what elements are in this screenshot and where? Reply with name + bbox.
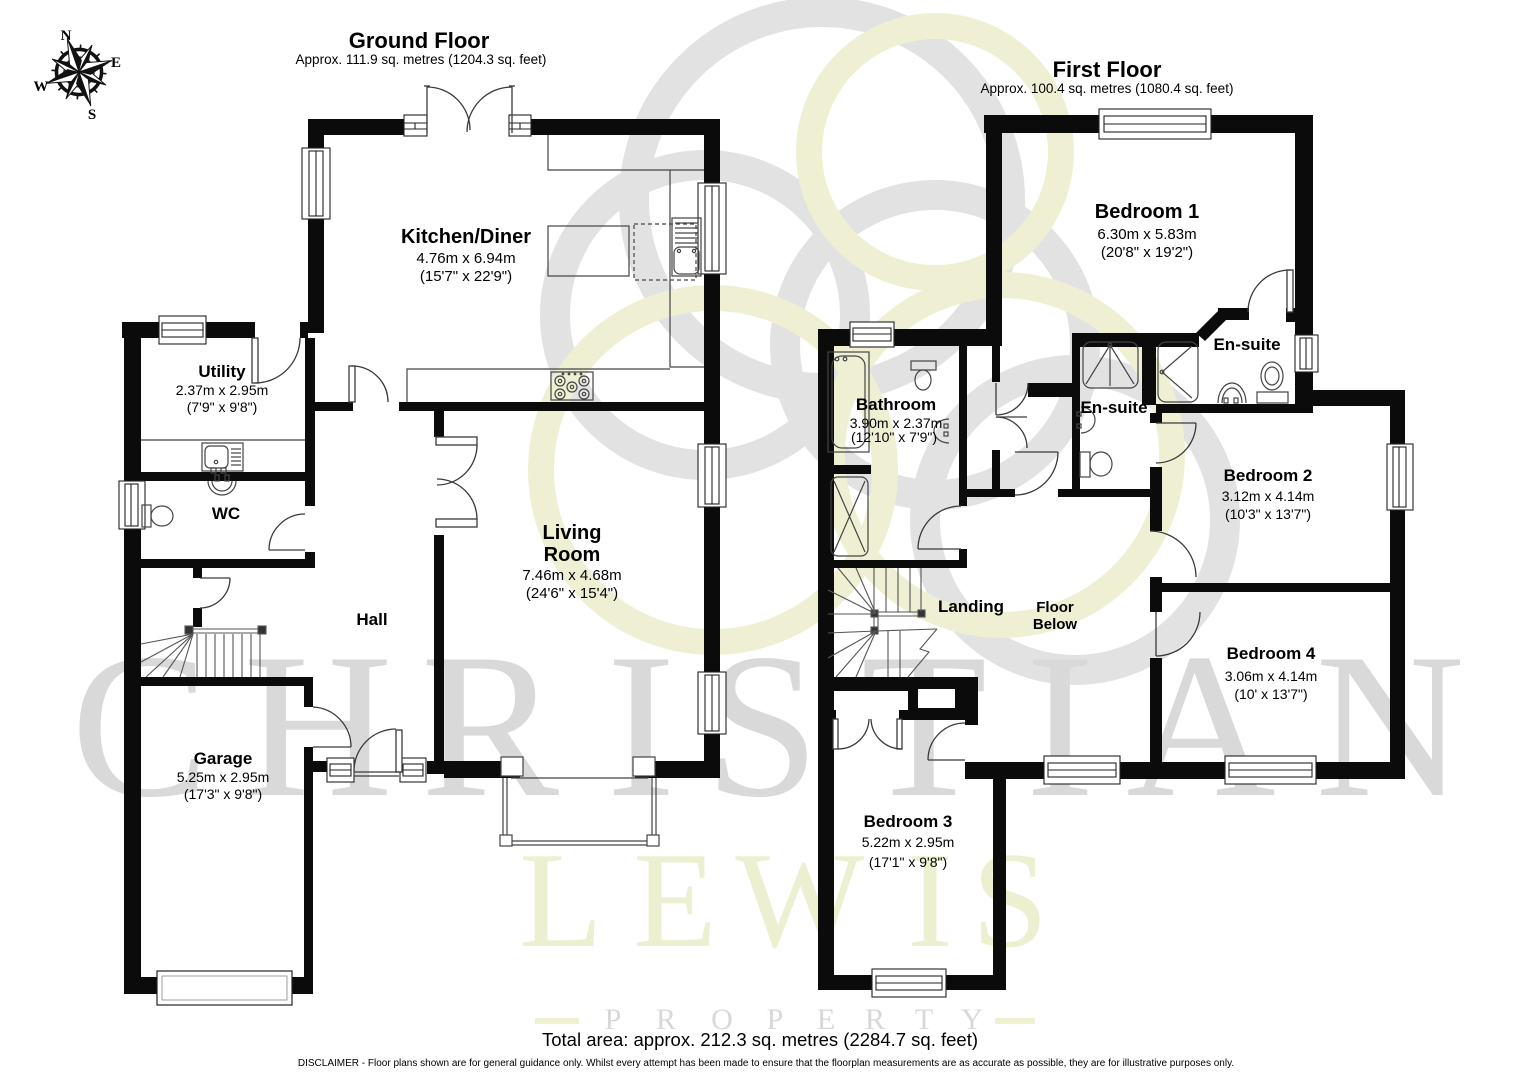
svg-text:En-suite: En-suite: [1213, 335, 1280, 354]
svg-text:Landing: Landing: [938, 597, 1004, 616]
svg-text:(24'6" x 15'4"): (24'6" x 15'4"): [526, 585, 618, 602]
svg-text:Ground Floor: Ground Floor: [349, 28, 490, 53]
svg-text:7.46m x 4.68m: 7.46m x 4.68m: [522, 567, 621, 584]
svg-text:Total area: approx. 212.3 sq.: Total area: approx. 212.3 sq. metres (22…: [542, 1029, 978, 1050]
svg-text:(7'9" x 9'8"): (7'9" x 9'8"): [187, 399, 258, 415]
svg-text:H: H: [243, 611, 393, 840]
svg-text:Bedroom 3: Bedroom 3: [864, 812, 953, 831]
svg-text:5.22m x 2.95m: 5.22m x 2.95m: [862, 834, 955, 850]
svg-text:(10' x 13'7"): (10' x 13'7"): [1234, 686, 1307, 702]
svg-text:(17'1" x 9'8"): (17'1" x 9'8"): [869, 854, 947, 870]
svg-text:(10'3" x 13'7"): (10'3" x 13'7"): [1225, 506, 1311, 522]
svg-text:First Floor: First Floor: [1053, 57, 1162, 82]
svg-text:Hall: Hall: [356, 610, 387, 629]
svg-text:5.25m x 2.95m: 5.25m x 2.95m: [177, 769, 270, 785]
svg-text:Living: Living: [543, 522, 602, 544]
svg-text:(12'10" x 7'9"): (12'10" x 7'9"): [851, 429, 937, 445]
svg-text:3.12m x 4.14m: 3.12m x 4.14m: [1222, 488, 1315, 504]
svg-text:Floor: Floor: [1036, 599, 1074, 616]
svg-text:Garage: Garage: [194, 749, 253, 768]
svg-text:S: S: [88, 107, 96, 123]
svg-text:DISCLAIMER - Floor plans show: DISCLAIMER - Floor plans shown are for g…: [298, 1058, 1234, 1069]
svg-text:Approx. 111.9 sq. metres (1204: Approx. 111.9 sq. metres (1204.3 sq. fee…: [296, 52, 547, 67]
svg-text:Bedroom 2: Bedroom 2: [1224, 466, 1313, 485]
svg-text:4.76m x 6.94m: 4.76m x 6.94m: [416, 250, 515, 267]
svg-text:Bedroom 4: Bedroom 4: [1227, 644, 1316, 663]
svg-text:E: E: [111, 55, 121, 71]
svg-text:Room: Room: [544, 544, 601, 566]
svg-text:Below: Below: [1033, 616, 1078, 633]
svg-text:WC: WC: [212, 504, 240, 523]
svg-text:(17'3" x 9'8"): (17'3" x 9'8"): [184, 786, 262, 802]
svg-text:Utility: Utility: [198, 362, 246, 381]
svg-text:S: S: [972, 824, 1048, 976]
svg-text:N: N: [61, 28, 72, 44]
svg-text:Bedroom 1: Bedroom 1: [1095, 201, 1199, 223]
svg-text:6.30m x 5.83m: 6.30m x 5.83m: [1097, 226, 1196, 243]
svg-text:T: T: [861, 611, 987, 840]
svg-text:Kitchen/Diner: Kitchen/Diner: [401, 226, 531, 248]
svg-text:W: W: [34, 79, 49, 95]
svg-text:(15'7" x 22'9"): (15'7" x 22'9"): [420, 268, 512, 285]
svg-text:2.37m x 2.95m: 2.37m x 2.95m: [176, 382, 269, 398]
svg-text:L: L: [519, 824, 603, 976]
svg-text:(20'8" x 19'2"): (20'8" x 19'2"): [1101, 244, 1193, 261]
svg-text:E: E: [633, 824, 717, 976]
svg-text:Bathroom: Bathroom: [856, 395, 936, 414]
svg-text:Approx. 100.4 sq. metres (1080: Approx. 100.4 sq. metres (1080.4 sq. fee…: [981, 81, 1234, 96]
svg-text:3.06m x 4.14m: 3.06m x 4.14m: [1225, 668, 1318, 684]
svg-text:W: W: [735, 824, 865, 976]
svg-text:I: I: [1026, 611, 1095, 840]
svg-text:En-suite: En-suite: [1080, 398, 1147, 417]
svg-text:I: I: [607, 611, 676, 840]
